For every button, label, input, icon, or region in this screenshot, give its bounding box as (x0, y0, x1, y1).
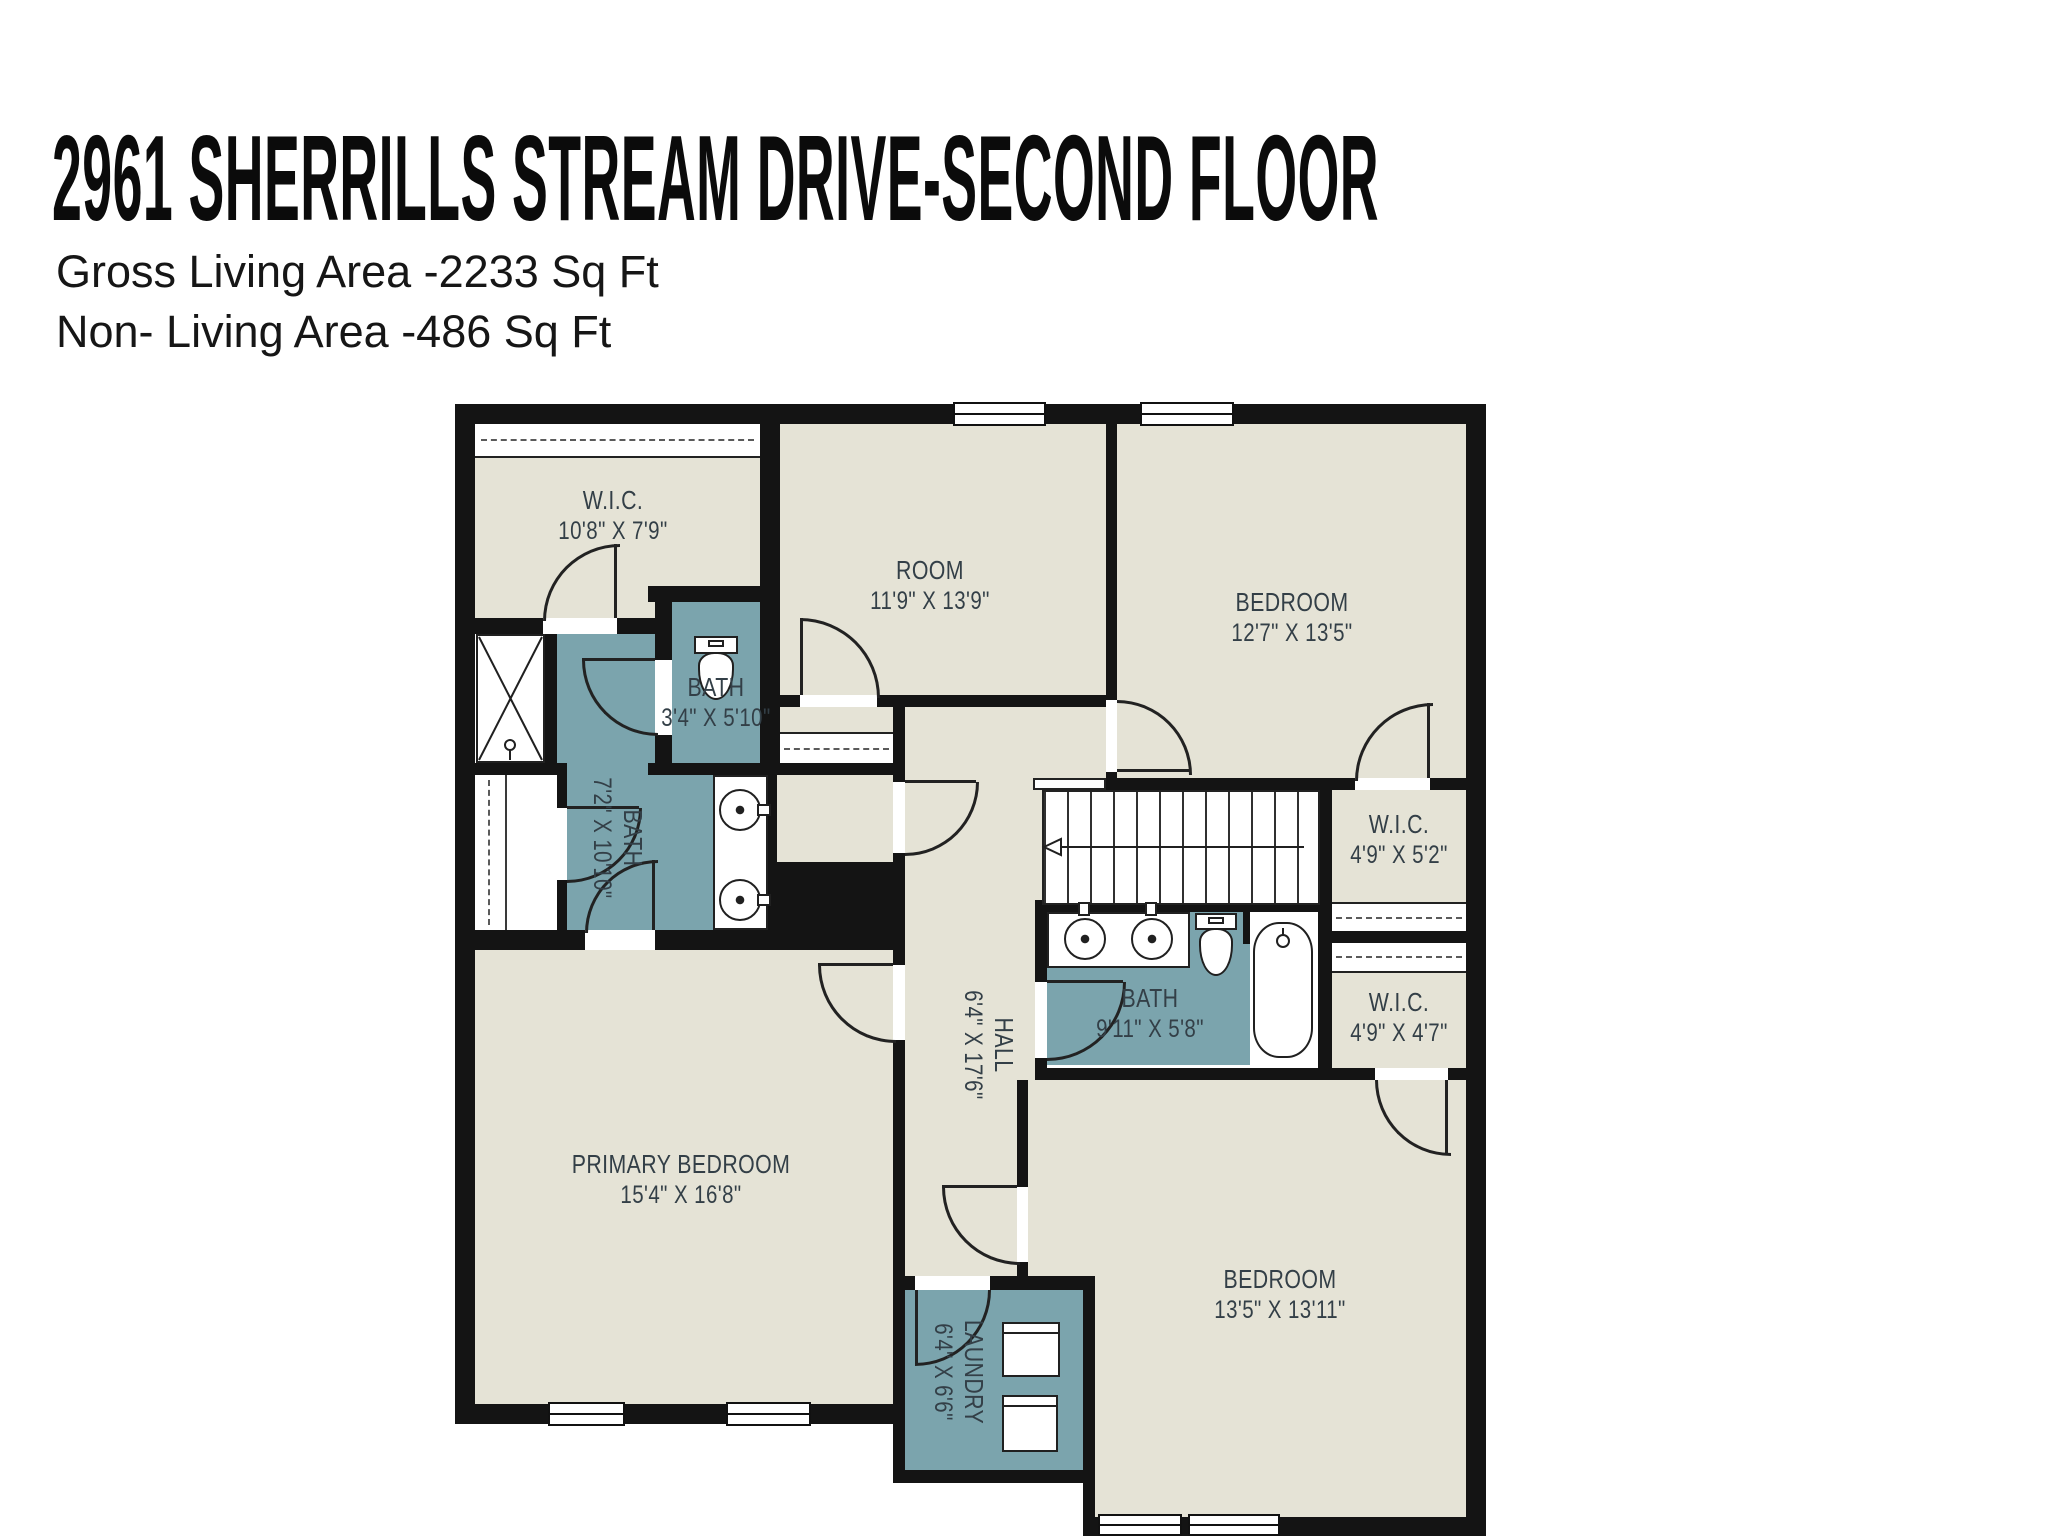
window (953, 402, 1046, 426)
door-leaf (942, 1185, 1017, 1188)
room-dims: 9'11" X 5'8" (1096, 1014, 1204, 1045)
room-dims: 11'9" X 13'9" (870, 586, 990, 617)
closet-rod-dashed-line (1336, 956, 1462, 958)
door-sill (557, 808, 567, 880)
faucet (1145, 902, 1157, 916)
sink (1131, 918, 1173, 960)
window (1098, 1514, 1182, 1536)
window-mullion (1100, 1524, 1180, 1526)
wall (990, 1276, 1095, 1290)
window-mullion (1142, 413, 1232, 415)
wall (893, 1276, 915, 1290)
room-fill-room-closet (780, 707, 893, 732)
room-name: BATH (617, 810, 648, 867)
room-label-primary-bedroom: PRIMARY BEDROOM 15'4" X 16'8" (572, 1149, 791, 1211)
wall (877, 695, 1117, 707)
window (1188, 1514, 1280, 1536)
bathtub (1253, 922, 1313, 1058)
wall (1083, 1287, 1095, 1536)
wall (1106, 772, 1117, 790)
window (548, 1402, 625, 1426)
room-label-hall: HALL 6'4" X 17'6" (957, 990, 1019, 1099)
room-label-wic-right-upper: W.I.C. 4'9" X 5'2" (1350, 809, 1448, 871)
room-name: HALL (988, 1018, 1019, 1073)
room-dims: 4'9" X 5'2" (1350, 840, 1448, 871)
sink (1064, 918, 1106, 960)
room-dims: 3'4" X 5'10" (661, 703, 770, 734)
dryer (1002, 1395, 1058, 1452)
wall (768, 775, 777, 862)
room-name: BEDROOM (1235, 587, 1348, 618)
floor-plan-page: 2961 SHERRILLS STREAM DRIVE-SECOND FLOOR… (0, 0, 2048, 1536)
wall (1243, 912, 1250, 944)
room-dims: 15'4" X 16'8" (620, 1180, 741, 1211)
room-name: ROOM (896, 555, 964, 586)
room-label-bedroom-bottom-right: BEDROOM 13'5" X 13'11" (1214, 1264, 1345, 1326)
staircase (1042, 790, 1320, 905)
door-sill (915, 1276, 990, 1290)
faucet (757, 804, 771, 816)
closet-rod-dashed-line (784, 748, 889, 750)
wall (1318, 912, 1332, 1068)
wall (893, 950, 905, 965)
window-mullion (728, 1413, 809, 1415)
wall (893, 1276, 905, 1483)
room-label-laundry: LAUNDRY 6'4" X 6'6" (927, 1320, 989, 1424)
room-dims: 7'2" X 10'10" (586, 777, 617, 898)
closet-rod-dashed-line (481, 439, 754, 441)
wall (1448, 1068, 1466, 1080)
stair-rail (1033, 778, 1106, 790)
room-dims: 6'4" X 6'6" (927, 1323, 958, 1421)
room-label-bath-small: BATH 3'4" X 5'10" (661, 672, 770, 734)
wall (655, 735, 672, 763)
sink (719, 879, 761, 921)
room-dims: 6'4" X 17'6" (957, 990, 988, 1099)
wall (893, 1470, 1095, 1483)
closet-shelf-wic-top-left (475, 424, 760, 458)
closet-rod-dashed-line (1336, 917, 1462, 919)
door-sill (1035, 982, 1047, 1058)
floor-plan: W.I.C. 10'8" X 7'9" ROOM 11'9" X 13'9" B… (0, 0, 2048, 1536)
wall (893, 707, 905, 782)
room-name: LAUNDRY (958, 1320, 989, 1424)
wall (760, 424, 780, 602)
room-name: BATH (1122, 983, 1179, 1014)
wall (455, 763, 557, 775)
closet-shelf-wic-right-lower (1332, 943, 1466, 973)
wall (1320, 931, 1466, 943)
room-dims: 12'7" X 13'5" (1231, 618, 1352, 649)
door-leaf (915, 1290, 918, 1363)
room-label-wic-top-left: W.I.C. 10'8" X 7'9" (558, 485, 667, 547)
window-mullion (1190, 1524, 1278, 1526)
wall (1106, 404, 1117, 700)
door-leaf (800, 618, 803, 695)
door-leaf (1445, 1080, 1448, 1153)
room-name: BEDROOM (1223, 1264, 1336, 1295)
wall (557, 763, 567, 808)
window-mullion (955, 413, 1044, 415)
closet-shelf-wic-right-upper (1332, 902, 1466, 931)
hall-fill-landing (905, 707, 1106, 778)
wall (455, 930, 585, 950)
washer-door-line (1004, 1332, 1058, 1334)
room-label-room: ROOM 11'9" X 13'9" (870, 555, 990, 617)
door-sill (585, 930, 655, 950)
room-dims: 4'9" X 4'7" (1350, 1018, 1448, 1049)
door-leaf (1117, 769, 1189, 772)
door-sill (1106, 700, 1117, 772)
room-name: W.I.C. (583, 485, 644, 516)
room-fill-bath-primary-2 (655, 775, 713, 930)
washer (1002, 1322, 1060, 1377)
room-dims: 10'8" X 7'9" (558, 516, 667, 547)
door-sill (893, 782, 905, 853)
wall (765, 763, 893, 775)
door-leaf (1427, 703, 1430, 778)
wall (1430, 778, 1466, 790)
door-leaf (818, 963, 893, 966)
closet-shelf-room-closet (780, 732, 893, 763)
wall (557, 880, 567, 930)
faucet (1078, 902, 1090, 916)
shower (476, 634, 545, 763)
wall (1466, 404, 1486, 1536)
window (1140, 402, 1234, 426)
room-name: BATH (688, 672, 745, 703)
wall (545, 634, 557, 763)
closet-shelf-edge-line (505, 775, 507, 930)
wall (1035, 900, 1047, 982)
door-leaf (905, 780, 976, 783)
toilet-flush-button (1208, 917, 1224, 924)
room-dims: 13'5" X 13'11" (1214, 1295, 1345, 1326)
window (726, 1402, 811, 1426)
door-leaf (614, 544, 617, 618)
wall (1035, 1068, 1375, 1080)
room-name: PRIMARY BEDROOM (572, 1149, 791, 1180)
door-sill (1375, 1068, 1448, 1080)
door-leaf (582, 658, 655, 661)
room-label-bedroom-top-right: BEDROOM 12'7" X 13'5" (1231, 587, 1352, 649)
room-label-bath-middle: BATH 9'11" X 5'8" (1096, 983, 1204, 1045)
wall (655, 602, 672, 660)
room-label-wic-right-lower: W.I.C. 4'9" X 4'7" (1350, 987, 1448, 1049)
toilet-flush-button (708, 640, 724, 647)
room-name: W.I.C. (1369, 809, 1430, 840)
door-leaf (652, 860, 655, 930)
room-fill-nook-closet (777, 775, 893, 862)
window-mullion (550, 1413, 623, 1415)
linen-closet-left (476, 775, 557, 930)
sink (719, 789, 761, 831)
wall (455, 404, 475, 1424)
faucet (757, 894, 771, 906)
wall (455, 618, 543, 634)
room-name: W.I.C. (1369, 987, 1430, 1018)
wall (455, 1404, 905, 1424)
wall (893, 1040, 905, 1276)
wall (768, 862, 905, 950)
wall (893, 853, 905, 862)
room-label-bath-primary: BATH 7'2" X 10'10" (586, 777, 648, 898)
closet-rod-dashed-line (488, 780, 490, 925)
dryer-door-line (1004, 1405, 1056, 1407)
